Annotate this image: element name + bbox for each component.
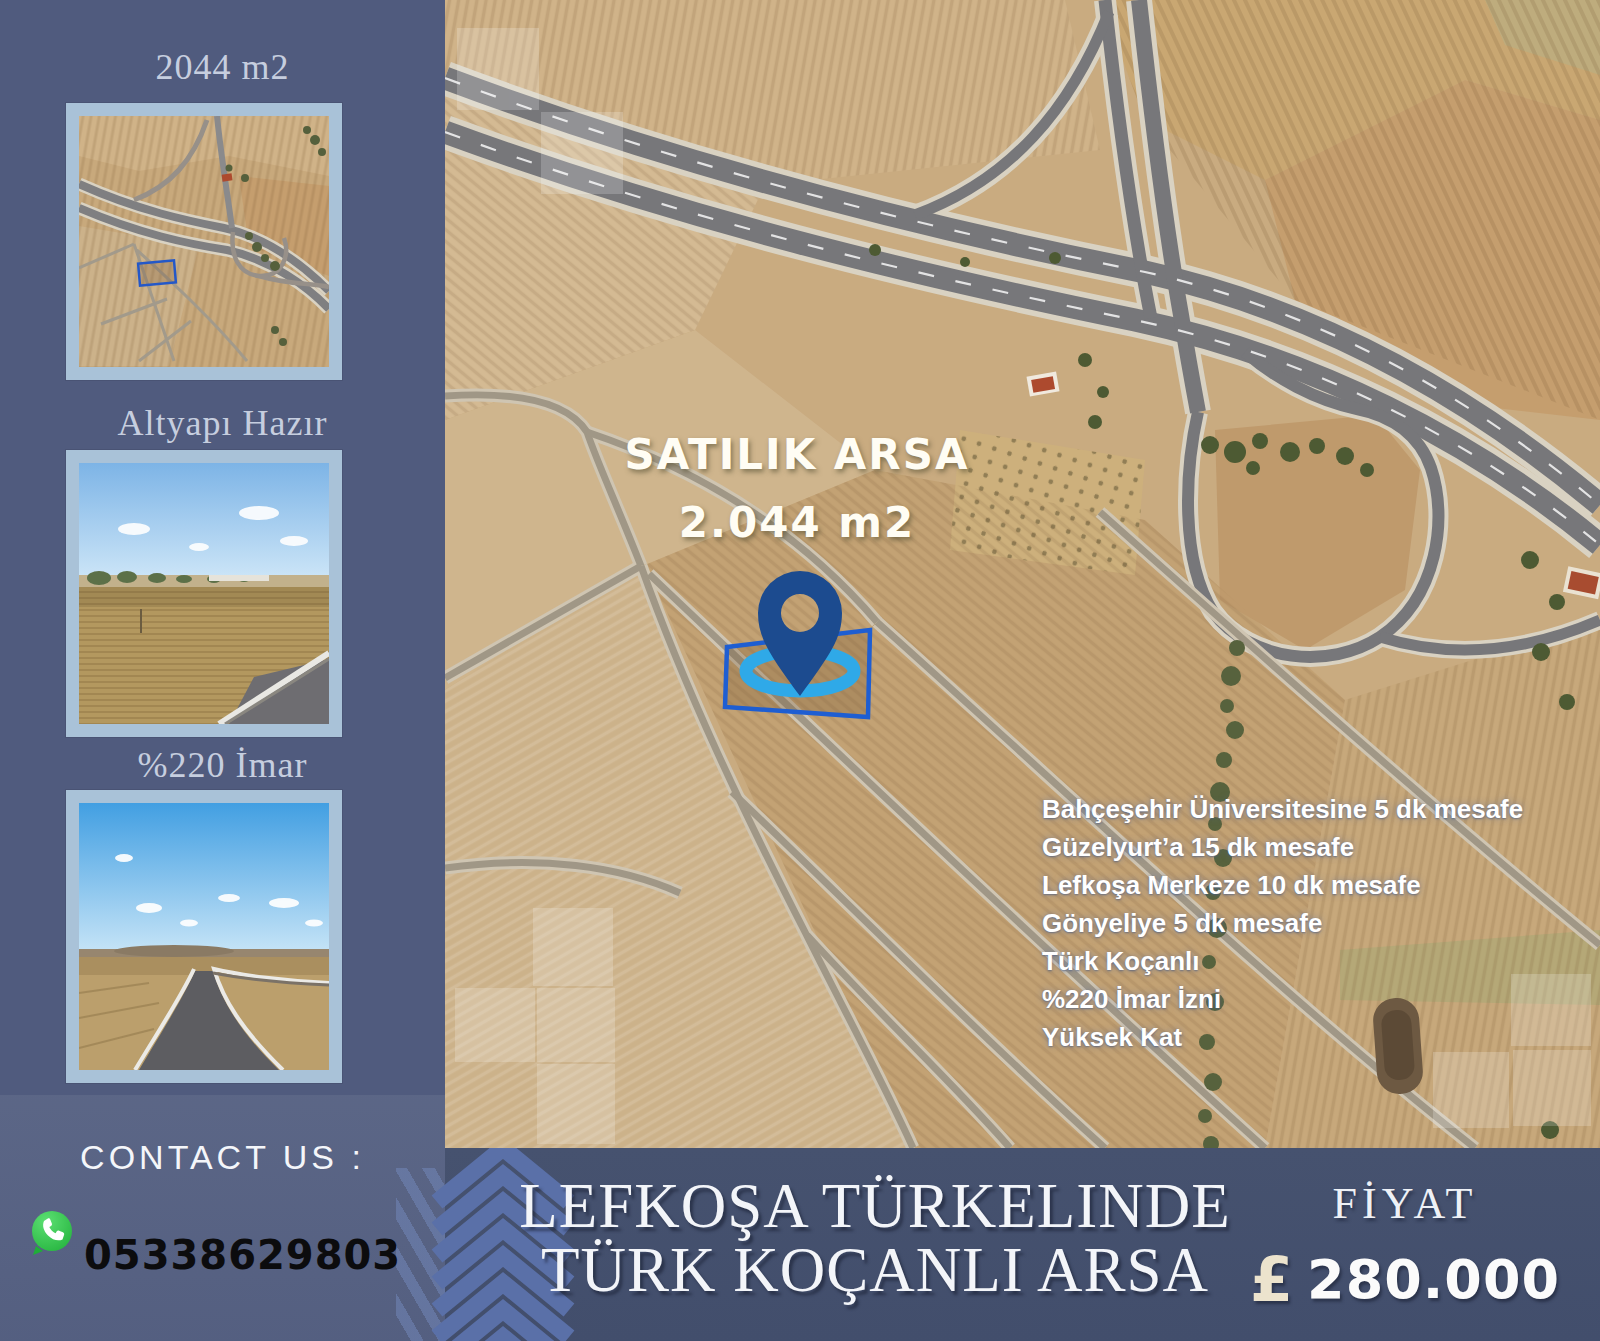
feature-item: Yüksek Kat: [1042, 1018, 1582, 1056]
feature-item: Lefkoşa Merkeze 10 dk mesafe: [1042, 866, 1582, 904]
pound-currency-symbol: £: [1250, 1243, 1293, 1316]
feature-item: Bahçeşehir Üniversitesine 5 dk mesafe: [1042, 790, 1582, 828]
thumbnail-road-photo: [66, 790, 342, 1083]
price-value: 280.000: [1307, 1248, 1560, 1311]
sidebar: 2044 m2: [0, 0, 445, 1341]
thumbnail-satellite: [66, 103, 342, 380]
feature-item: Türk Koçanlı: [1042, 942, 1582, 980]
phone-number[interactable]: 05338629803: [84, 1232, 414, 1278]
feature-item: Güzelyurt’a 15 dk mesafe: [1042, 828, 1582, 866]
feature-list: Bahçeşehir Üniversitesine 5 dk mesafe Gü…: [1042, 790, 1582, 1056]
satellite-map: SATILIK ARSA 2.044 m2 Bahçeşehir Ünivers…: [445, 0, 1600, 1148]
sale-title: SATILIK ARSA: [572, 430, 1022, 479]
footer-title-line2: TÜRK KOÇANLI ARSA: [505, 1238, 1245, 1302]
feature-item: %220 İmar İzni: [1042, 980, 1582, 1018]
road-photo-art: [79, 803, 329, 1070]
field-photo-art: [79, 463, 329, 724]
contact-heading: CONTACT US :: [0, 1138, 445, 1177]
feature-item: Gönyeliye 5 dk mesafe: [1042, 904, 1582, 942]
price-label: FİYAT: [1245, 1178, 1565, 1229]
real-estate-poster: 2044 m2: [0, 0, 1600, 1341]
thumbnail-field-photo: [66, 450, 342, 737]
price-row: £ 280.000: [1245, 1243, 1565, 1316]
price-block: FİYAT £ 280.000: [1245, 1178, 1565, 1316]
footer-bar: LEFKOŞA TÜRKELINDE TÜRK KOÇANLI ARSA FİY…: [445, 1148, 1600, 1341]
satellite-thumb-art: [79, 116, 329, 367]
footer-title: LEFKOŞA TÜRKELINDE TÜRK KOÇANLI ARSA: [505, 1174, 1245, 1302]
whatsapp-icon[interactable]: [26, 1208, 76, 1258]
card-label-area: 2044 m2: [0, 46, 445, 88]
sale-area: 2.044 m2: [572, 498, 1022, 547]
card-label-infrastructure: Altyapı Hazır: [0, 402, 445, 444]
footer-title-line1: LEFKOŞA TÜRKELINDE: [505, 1174, 1245, 1238]
card-label-zoning: %220 İmar: [0, 744, 445, 786]
